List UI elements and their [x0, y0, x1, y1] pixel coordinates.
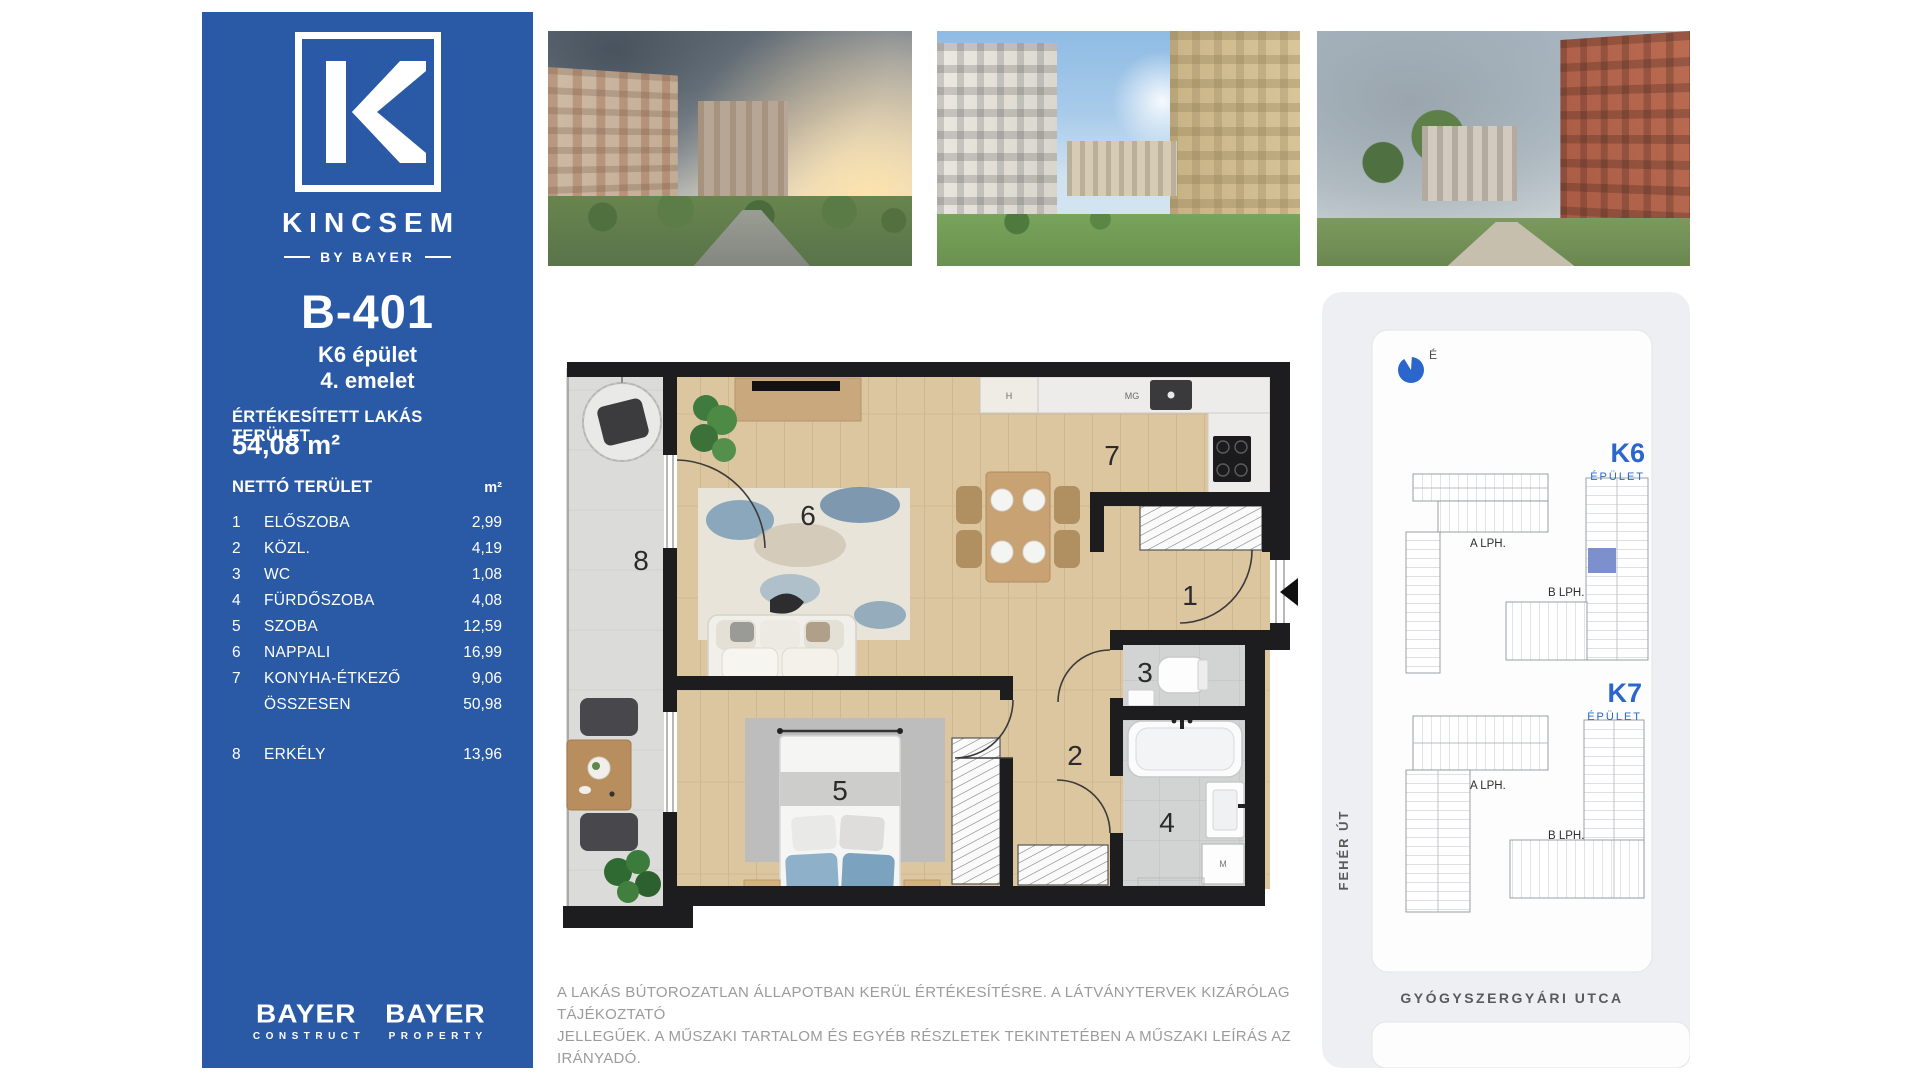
- street-label-feher-ut: FEHÉR ÚT: [1336, 810, 1351, 891]
- lawn: [937, 214, 1300, 266]
- building-render: [1560, 31, 1690, 241]
- unit-floor: 4. emelet: [202, 368, 533, 394]
- unit-building: K6 épület: [202, 342, 533, 368]
- render-photo-courtyard: [937, 31, 1300, 266]
- brand-name: KINCSEM: [202, 207, 533, 239]
- mg-label: MG: [1125, 391, 1140, 401]
- disclaimer-text: A LAKÁS BÚTOROZATLAN ÁLLAPOTBAN KERÜL ÉR…: [557, 982, 1322, 1070]
- building-render: [1067, 141, 1177, 196]
- byline: BY BAYER: [202, 249, 533, 265]
- balcony-door-frame: [664, 455, 676, 548]
- k-mark-icon: [302, 39, 434, 185]
- table-row: 2KÖZL.4,19: [232, 536, 502, 562]
- room-number-living: 6: [800, 500, 816, 531]
- apartment-datasheet: KINCSEM BY BAYER B-401 K6 épület 4. emel…: [0, 0, 1920, 1080]
- sidebar-footer: BAYER CONSTRUCT BAYER PROPERTY: [202, 998, 533, 1042]
- bed: [777, 728, 903, 902]
- balcony-table: [567, 740, 631, 810]
- k7-code: K7: [1607, 678, 1642, 708]
- byline-dash-right: [425, 256, 451, 258]
- table-row-total: ÖSSZESEN50,98: [232, 692, 502, 718]
- bathtub: [1128, 717, 1242, 777]
- kincsem-logo: [295, 32, 441, 192]
- bayer-construct-logo: BAYER CONSTRUCT: [247, 998, 365, 1042]
- faucet: [1168, 392, 1175, 399]
- building-render: [698, 101, 788, 196]
- room-number-hall: 1: [1182, 580, 1198, 611]
- k7-stair-b: B LPH.: [1548, 830, 1584, 842]
- building-render: [1422, 126, 1517, 201]
- table-row: 4FÜRDŐSZOBA4,08: [232, 588, 502, 614]
- unit-id: B-401: [202, 284, 533, 339]
- wardrobe-bedroom: [952, 738, 1000, 884]
- render-photo-street: [548, 31, 912, 266]
- block-card-south: [1372, 1022, 1690, 1068]
- k6-stair-a: A LPH.: [1470, 538, 1506, 550]
- building-render: [1170, 31, 1300, 231]
- site-map-drawing: É K6 ÉPÜLET A LPH. B LPH. K7 ÉPÜLET A: [1322, 292, 1690, 1068]
- building-render: [937, 43, 1057, 223]
- svg-text:M: M: [1219, 859, 1227, 869]
- net-area-unit: m²: [484, 480, 502, 496]
- floor-plan: M: [563, 357, 1308, 935]
- table-row: 8ERKÉLY13,96: [232, 742, 502, 768]
- site-map: É K6 ÉPÜLET A LPH. B LPH. K7 ÉPÜLET A: [1322, 292, 1690, 1068]
- k6-label: ÉPÜLET: [1590, 470, 1645, 483]
- floor-plan-drawing: M: [563, 357, 1308, 935]
- net-area-header: NETTÓ TERÜLET m²: [232, 478, 502, 497]
- table-row: 7KONYHA-ÉTKEZŐ9,06: [232, 666, 502, 692]
- render-photo-promenade: [1317, 31, 1690, 266]
- room-number-balcony: 8: [633, 545, 649, 576]
- k6-stair-b: B LPH.: [1548, 587, 1584, 599]
- wardrobe-entry: [1140, 506, 1262, 550]
- bathroom-sink: [1206, 782, 1248, 838]
- tv: [752, 381, 840, 391]
- room-number-corridor: 2: [1067, 740, 1083, 771]
- k6-code: K6: [1610, 438, 1645, 468]
- wardrobe-hall: [1018, 845, 1108, 885]
- table-row: 1ELŐSZOBA2,99: [232, 510, 502, 536]
- street-label-gyogyszergyari: GYÓGYSZERGYÁRI UTCA: [1400, 989, 1623, 1006]
- compass-label: É: [1429, 347, 1437, 362]
- bayer-property-logo: BAYER PROPERTY: [383, 998, 488, 1042]
- sold-area-value: 54,08 m²: [232, 430, 340, 461]
- table-row: 6NAPPALI16,99: [232, 640, 502, 666]
- table-row: 3WC1,08: [232, 562, 502, 588]
- k7-stair-a: A LPH.: [1470, 780, 1506, 792]
- washing-machine: M: [1202, 844, 1244, 884]
- byline-dash-left: [284, 256, 310, 258]
- net-area-label: NETTÓ TERÜLET: [232, 478, 372, 497]
- room-number-wc: 3: [1137, 657, 1153, 688]
- highlighted-unit: [1588, 548, 1616, 573]
- sidebar: KINCSEM BY BAYER B-401 K6 épület 4. emel…: [202, 12, 533, 1068]
- room-area-table: 1ELŐSZOBA2,99 2KÖZL.4,19 3WC1,08 4FÜRDŐS…: [232, 510, 502, 768]
- room-number-bedroom: 5: [832, 775, 848, 806]
- k7-label: ÉPÜLET: [1587, 710, 1642, 723]
- room-number-bathroom: 4: [1159, 807, 1175, 838]
- hood-label: H: [1006, 391, 1013, 401]
- table-row: 5SZOBA12,59: [232, 614, 502, 640]
- room-number-kitchen: 7: [1104, 440, 1120, 471]
- bedroom-window-frame: [664, 712, 676, 812]
